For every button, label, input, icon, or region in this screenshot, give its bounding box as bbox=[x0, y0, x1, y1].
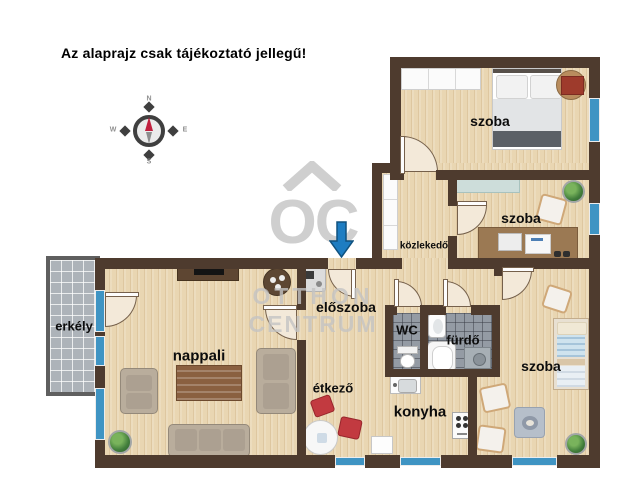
plant bbox=[565, 433, 587, 455]
rug bbox=[176, 365, 242, 401]
window bbox=[589, 98, 600, 142]
room-label-bedroom1: szoba bbox=[470, 113, 510, 129]
window bbox=[400, 457, 441, 466]
room-label-hallway: közlekedő bbox=[400, 241, 448, 252]
roof-icon bbox=[281, 161, 343, 191]
toilet-tank bbox=[397, 346, 418, 354]
toilet bbox=[400, 354, 415, 368]
wall bbox=[95, 455, 335, 468]
compass-point-west bbox=[119, 125, 130, 136]
room-label-dining: étkező bbox=[313, 381, 353, 396]
wall bbox=[385, 305, 393, 377]
window bbox=[589, 203, 600, 235]
window bbox=[335, 457, 365, 466]
floor-plan: Az alaprajz csak tájékoztató jellegű! N … bbox=[0, 0, 627, 500]
entrance-arrow-icon bbox=[329, 221, 354, 259]
compass-point-north bbox=[143, 101, 154, 112]
balcony-wall bbox=[46, 256, 100, 260]
wardrobe bbox=[401, 68, 481, 90]
compass-label-n: N bbox=[146, 96, 151, 103]
compass-label-s: S bbox=[147, 159, 152, 166]
door-panel bbox=[502, 267, 534, 272]
balcony-wall bbox=[46, 392, 100, 396]
window bbox=[95, 336, 105, 366]
room-label-wc: WC bbox=[396, 323, 418, 338]
window bbox=[95, 388, 105, 440]
desk bbox=[478, 227, 578, 259]
dresser bbox=[456, 178, 520, 193]
disclaimer-title: Az alaprajz csak tájékoztató jellegű! bbox=[61, 45, 306, 61]
wall bbox=[95, 258, 328, 269]
compass-point-east bbox=[167, 125, 178, 136]
wall bbox=[492, 305, 500, 377]
plant bbox=[108, 430, 132, 454]
wall bbox=[390, 57, 600, 68]
wall bbox=[468, 369, 477, 465]
wall bbox=[589, 268, 600, 465]
room-label-living: nappali bbox=[173, 348, 226, 365]
door-panel bbox=[443, 279, 448, 307]
bathroom-sink bbox=[428, 313, 446, 338]
wall bbox=[420, 305, 428, 377]
wall bbox=[494, 268, 502, 276]
compass-label-e: E bbox=[183, 127, 188, 134]
room-label-entry: előszoba bbox=[316, 299, 376, 315]
washing-machine bbox=[464, 347, 491, 369]
kitchen-sink bbox=[390, 375, 421, 394]
compass-needle-north bbox=[145, 117, 153, 131]
kitchen-cabinet bbox=[371, 436, 393, 454]
balcony-door-glass bbox=[95, 290, 105, 332]
room-label-balcony: erkély bbox=[55, 319, 93, 334]
chair bbox=[475, 424, 506, 454]
wall bbox=[557, 455, 600, 468]
child-bed bbox=[553, 318, 589, 390]
door-panel bbox=[394, 279, 399, 307]
plant bbox=[562, 180, 585, 203]
room-label-bedroom2: szoba bbox=[501, 210, 541, 226]
wall bbox=[297, 340, 306, 460]
wall bbox=[372, 163, 382, 268]
play-mat bbox=[514, 407, 545, 438]
room-label-kitchen: konyha bbox=[394, 404, 447, 421]
sofa bbox=[168, 424, 250, 457]
wall bbox=[589, 57, 600, 268]
loveseat bbox=[256, 348, 296, 414]
door-panel bbox=[457, 201, 487, 206]
watermark-line2: CENTRUM bbox=[249, 313, 378, 336]
wall bbox=[365, 455, 400, 468]
wall bbox=[356, 258, 402, 269]
hall-cabinet bbox=[383, 174, 398, 250]
armchair bbox=[120, 368, 158, 414]
compass-needle-south bbox=[146, 132, 152, 144]
room-label-bedroom3: szoba bbox=[521, 358, 561, 374]
door-panel bbox=[105, 292, 139, 297]
double-bed bbox=[492, 68, 562, 150]
wall bbox=[436, 170, 600, 180]
compass-label-w: W bbox=[110, 127, 117, 134]
dining-table bbox=[303, 420, 338, 455]
wall bbox=[448, 180, 457, 206]
door-panel bbox=[400, 136, 405, 174]
window bbox=[512, 457, 557, 466]
room-label-bathroom: fürdő bbox=[446, 333, 479, 348]
balcony-wall bbox=[46, 256, 50, 396]
dining-chair bbox=[337, 416, 363, 440]
side-table bbox=[556, 70, 586, 100]
